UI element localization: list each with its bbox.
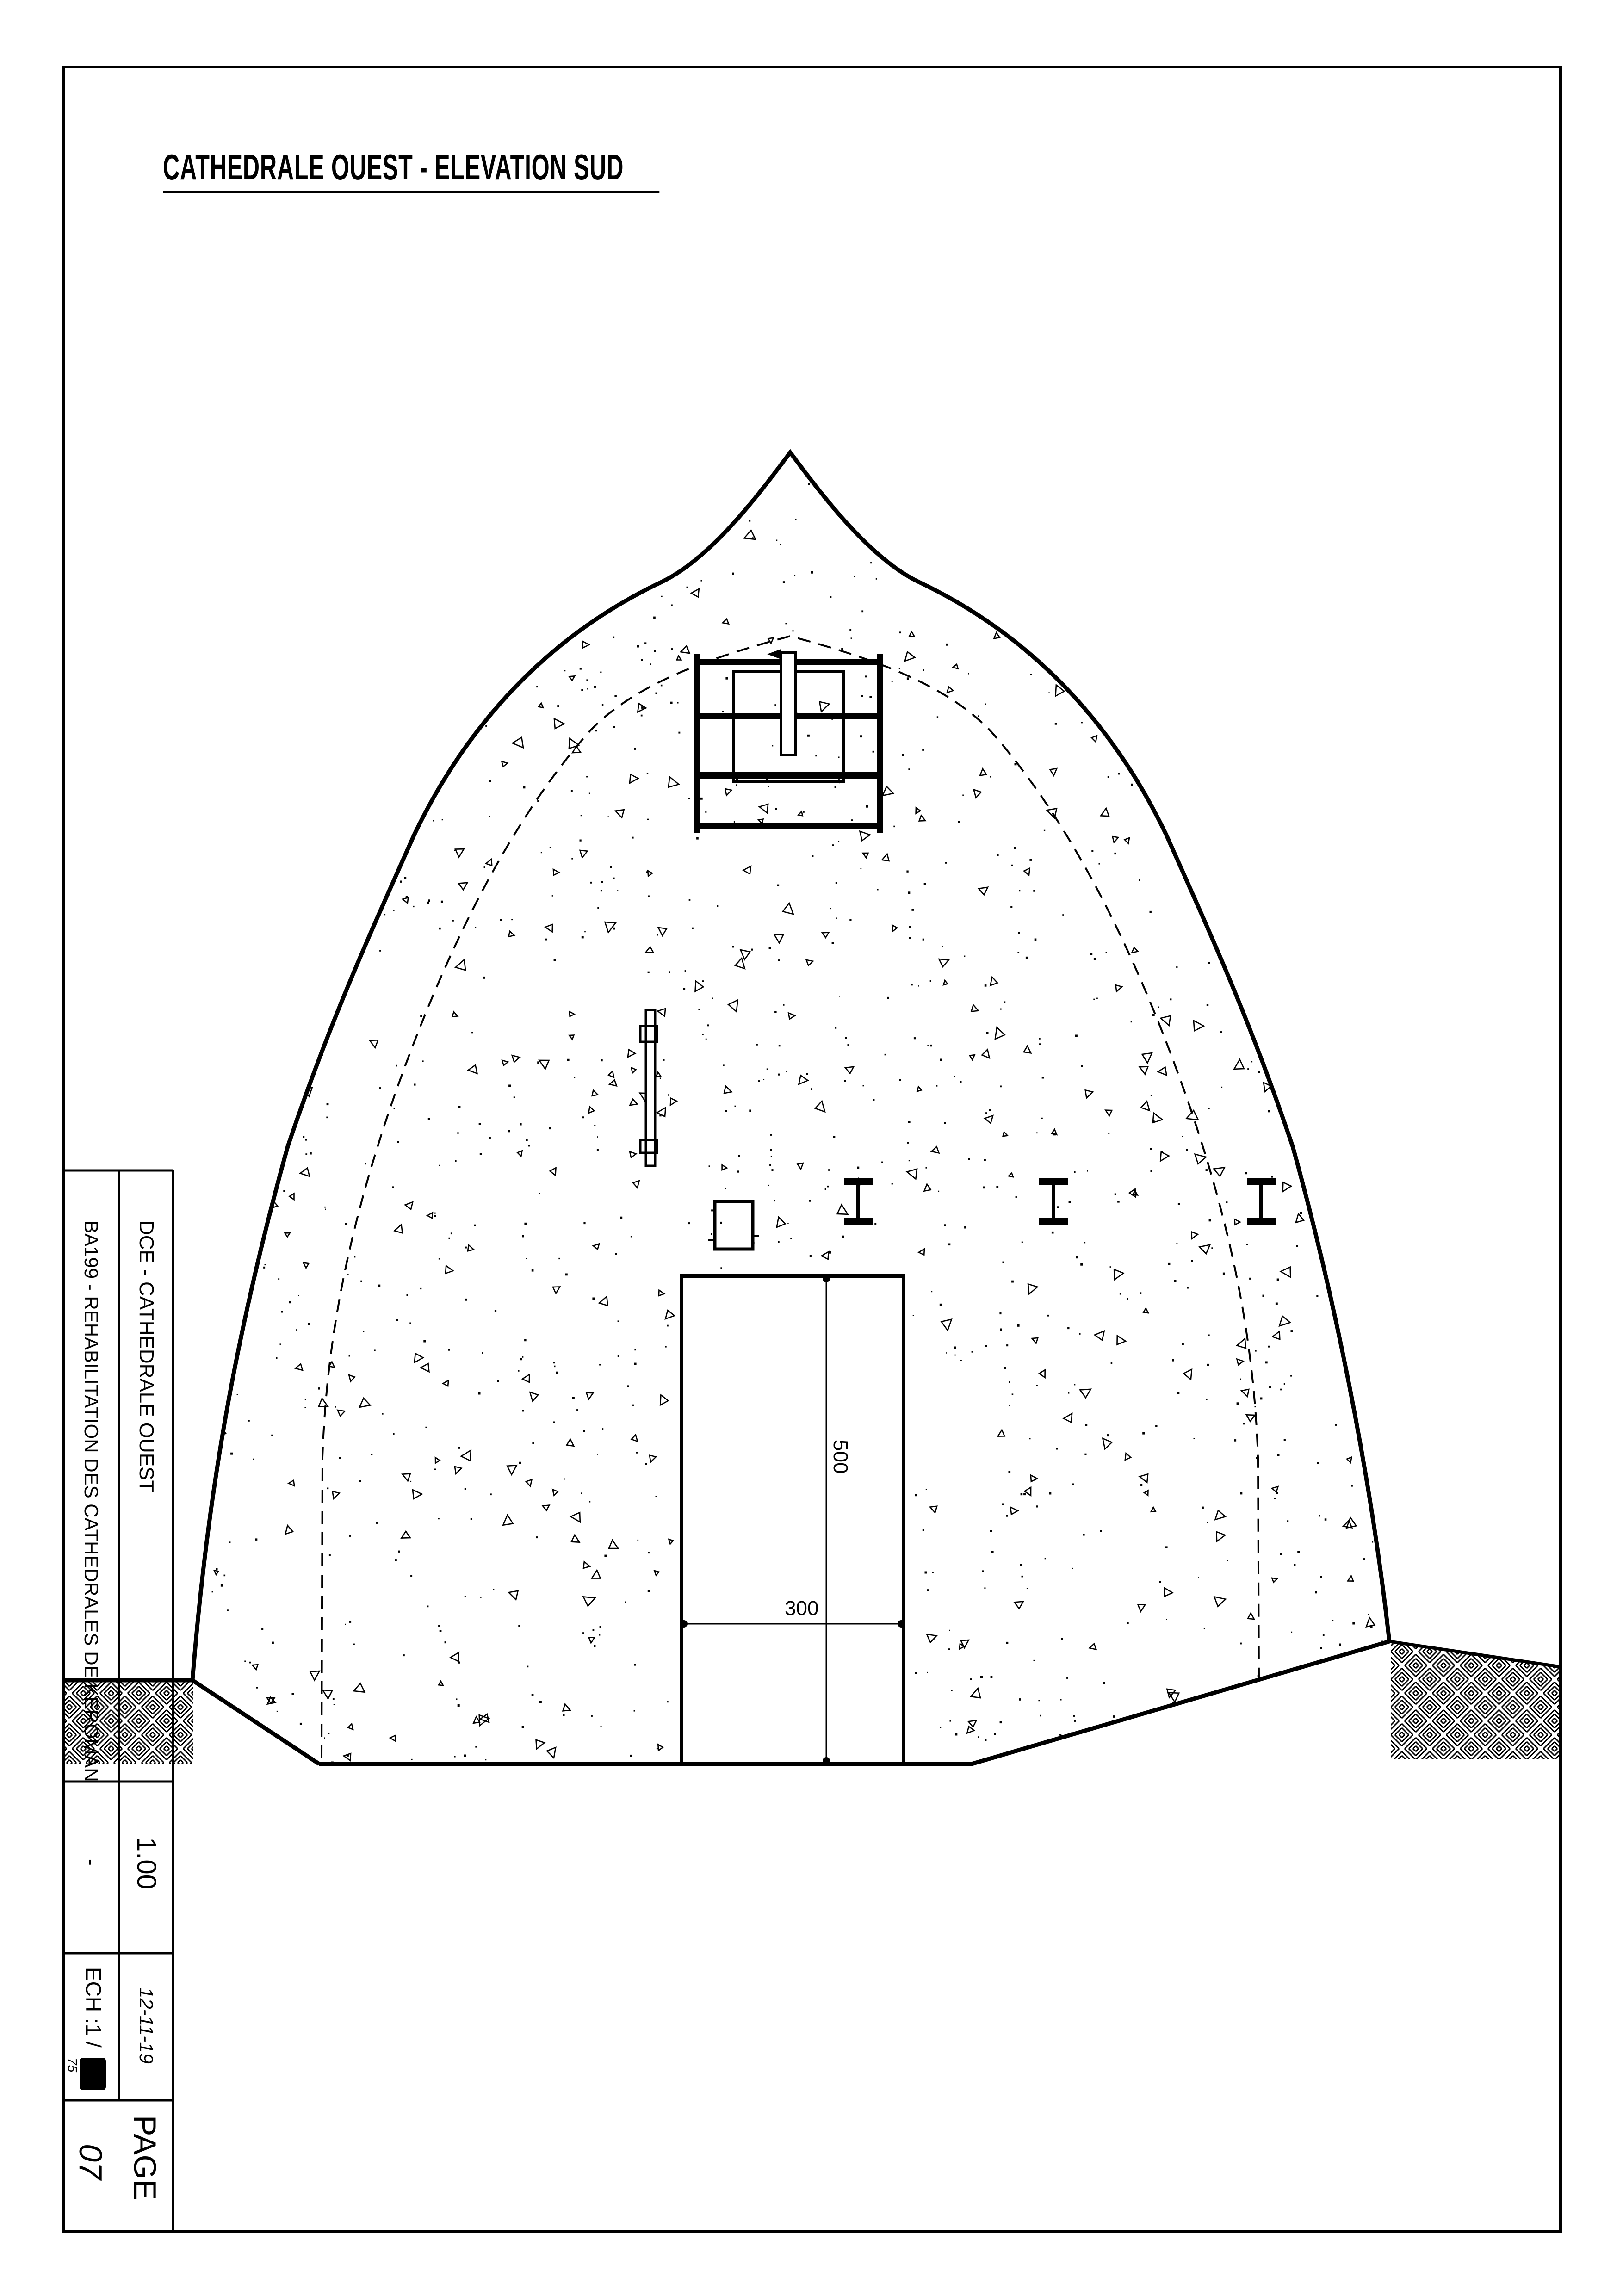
texture-dot — [1019, 890, 1020, 891]
texture-dot — [327, 1103, 329, 1105]
titleblock-page-number: 07 — [74, 2144, 107, 2180]
texture-triangle — [494, 499, 504, 510]
texture-dot — [225, 802, 226, 803]
texture-dot — [391, 505, 394, 507]
texture-dot — [495, 1310, 496, 1312]
texture-dot — [438, 1518, 440, 1519]
texture-dot — [328, 711, 330, 713]
texture-dot — [689, 899, 691, 901]
texture-dot — [857, 1167, 859, 1169]
texture-dot — [497, 1380, 499, 1382]
texture-dot — [832, 844, 834, 846]
texture-dot — [1227, 1560, 1228, 1561]
texture-dot — [937, 716, 938, 718]
texture-dot — [553, 1422, 555, 1423]
texture-dot — [280, 1343, 281, 1345]
texture-dot — [356, 501, 359, 503]
texture-dot — [766, 455, 768, 457]
texture-dot — [1258, 1071, 1260, 1073]
texture-dot — [253, 1174, 255, 1176]
texture-dot — [609, 539, 611, 541]
texture-dot — [845, 1037, 847, 1039]
texture-dot — [717, 905, 718, 907]
texture-dot — [296, 1329, 297, 1331]
texture-dot — [556, 1372, 558, 1374]
texture-dot — [1177, 1392, 1179, 1394]
texture-dot — [1057, 1206, 1059, 1208]
texture-dot — [1084, 1454, 1086, 1455]
texture-dot — [985, 1345, 987, 1347]
texture-dot — [936, 1085, 937, 1087]
texture-dot — [1081, 1065, 1083, 1067]
texture-triangle — [283, 657, 289, 662]
texture-dot — [1106, 952, 1107, 953]
texture-dot — [1166, 1619, 1167, 1620]
texture-dot — [597, 1454, 598, 1455]
texture-dot — [602, 704, 603, 706]
texture-dot — [785, 623, 787, 624]
texture-dot — [1060, 1699, 1061, 1700]
texture-dot — [427, 902, 429, 904]
texture-dot — [691, 472, 693, 473]
texture-dot — [519, 1462, 521, 1464]
texture-dot — [333, 1698, 335, 1700]
texture-dot — [657, 934, 658, 936]
texture-dot — [811, 1088, 812, 1090]
texture-dot — [685, 970, 686, 972]
texture-dot — [860, 735, 862, 737]
texture-dot — [541, 852, 542, 853]
texture-dot — [473, 497, 475, 499]
texture-triangle — [470, 615, 480, 625]
texture-dot — [188, 1537, 190, 1539]
texture-dot — [548, 455, 550, 457]
texture-dot — [197, 1591, 198, 1593]
texture-dot — [927, 1672, 928, 1673]
texture-dot — [768, 1185, 769, 1186]
texture-dot — [876, 578, 877, 580]
texture-dot — [1207, 1522, 1208, 1523]
texture-dot — [1114, 853, 1116, 854]
texture-dot — [1000, 1721, 1002, 1723]
texture-dot — [457, 573, 459, 575]
texture-dot — [1039, 1043, 1041, 1045]
texture-dot — [359, 907, 360, 908]
texture-dot — [1099, 863, 1100, 865]
texture-dot — [197, 1420, 199, 1422]
texture-dot — [911, 909, 914, 911]
texture-dot — [352, 498, 354, 500]
texture-dot — [396, 1319, 398, 1321]
texture-dot — [1080, 1263, 1083, 1266]
texture-dot — [264, 1084, 266, 1086]
texture-dot — [763, 1079, 765, 1080]
texture-dot — [270, 825, 271, 827]
texture-dot — [1090, 953, 1092, 955]
texture-dot — [479, 1123, 481, 1125]
texture-dot — [620, 1217, 623, 1219]
texture-dot — [630, 1755, 632, 1757]
texture-dot — [1168, 1263, 1171, 1265]
texture-dot — [707, 1024, 709, 1026]
texture-dot — [303, 1136, 304, 1138]
texture-dot — [1093, 999, 1095, 1000]
texture-dot — [523, 483, 524, 484]
texture-dot — [908, 1121, 911, 1123]
texture-dot — [1226, 1201, 1228, 1203]
texture-triangle — [455, 610, 469, 623]
texture-dot — [229, 461, 231, 463]
texture-dot — [1047, 1315, 1049, 1317]
texture-dot — [927, 1589, 929, 1591]
texture-dot — [289, 1301, 291, 1303]
texture-dot — [964, 1226, 966, 1229]
texture-dot — [637, 645, 639, 648]
texture-dot — [1176, 966, 1177, 968]
texture-dot — [489, 1137, 491, 1139]
texture-dot — [478, 1392, 481, 1395]
texture-dot — [194, 535, 196, 537]
texture-dot — [778, 1241, 780, 1243]
texture-dot — [1208, 1335, 1210, 1337]
texture-dot — [634, 1710, 635, 1712]
texture-dot — [212, 1348, 214, 1349]
texture-dot — [1161, 1151, 1163, 1152]
texture-dot — [861, 868, 862, 869]
texture-dot — [586, 679, 588, 681]
texture-dot — [1016, 1196, 1017, 1198]
texture-dot — [725, 1188, 726, 1189]
texture-dot — [511, 919, 513, 920]
scale-redaction-box — [80, 2058, 106, 2090]
texture-dot — [207, 603, 209, 604]
texture-dot — [978, 1736, 979, 1738]
texture-triangle — [241, 607, 247, 612]
texture-triangle — [308, 995, 316, 1003]
texture-triangle — [239, 1009, 244, 1015]
texture-dot — [1265, 1362, 1268, 1364]
texture-dot — [550, 847, 551, 848]
texture-dot — [915, 1672, 917, 1674]
texture-dot — [657, 547, 658, 549]
texture-dot — [1351, 1485, 1353, 1487]
texture-triangle — [508, 623, 516, 631]
texture-dot — [945, 862, 947, 863]
texture-dot — [254, 1166, 256, 1169]
texture-dot — [736, 784, 737, 786]
texture-dot — [915, 1494, 917, 1496]
texture-dot — [597, 907, 599, 909]
texture-dot — [615, 1253, 617, 1255]
texture-dot — [261, 996, 262, 997]
texture-dot — [484, 866, 485, 868]
texture-dot — [1247, 1068, 1249, 1070]
texture-dot — [452, 725, 454, 726]
texture-dot — [1208, 962, 1210, 964]
texture-dot — [1000, 1329, 1002, 1331]
texture-dot — [1268, 1110, 1270, 1112]
texture-dot — [397, 1141, 399, 1143]
texture-dot — [423, 1340, 426, 1343]
texture-dot — [1352, 1622, 1355, 1625]
texture-dot — [657, 1748, 658, 1749]
texture-dot — [836, 917, 837, 919]
texture-dot — [774, 704, 776, 706]
texture-dot — [493, 1589, 494, 1590]
texture-dot — [1276, 1492, 1278, 1494]
texture-dot — [778, 1074, 780, 1076]
texture-dot — [654, 650, 656, 652]
texture-dot — [668, 1094, 669, 1095]
titleblock-project: BA199 - REHABILITATION DES CATHEDRALES D… — [81, 1220, 101, 1782]
texture-dot — [1027, 1588, 1028, 1589]
texture-dot — [1174, 1280, 1177, 1282]
texture-triangle — [255, 497, 261, 503]
texture-dot — [881, 1162, 883, 1163]
texture-dot — [1280, 1389, 1282, 1391]
texture-dot — [836, 882, 837, 884]
texture-dot — [557, 705, 559, 707]
texture-triangle — [468, 681, 480, 693]
texture-dot — [751, 949, 753, 951]
texture-dot — [812, 855, 814, 857]
texture-dot — [207, 567, 209, 569]
texture-dot — [1120, 1293, 1121, 1294]
texture-dot — [1014, 847, 1016, 849]
texture-dot — [720, 1267, 722, 1269]
texture-dot — [349, 1535, 351, 1537]
texture-dot — [625, 1602, 626, 1603]
texture-dot — [907, 677, 909, 680]
texture-dot — [376, 652, 378, 654]
texture-dot — [211, 1306, 213, 1309]
texture-dot — [277, 1711, 278, 1712]
texture-dot — [923, 669, 924, 671]
texture-dot — [854, 576, 855, 577]
texture-dot — [842, 1236, 844, 1238]
texture-dot — [613, 637, 615, 638]
texture-dot — [1291, 1632, 1293, 1633]
texture-dot — [848, 1044, 849, 1046]
texture-dot — [909, 1160, 910, 1161]
texture-dot — [468, 644, 470, 646]
texture-dot — [1207, 1364, 1209, 1366]
texture-dot — [539, 1701, 542, 1703]
texture-dot — [1150, 1148, 1152, 1150]
texture-dot — [999, 1312, 1001, 1314]
texture-triangle — [255, 670, 263, 678]
texture-dot — [922, 749, 924, 751]
texture-dot — [345, 1223, 347, 1225]
texture-dot — [1142, 1432, 1145, 1435]
texture-dot — [255, 929, 258, 931]
texture-dot — [650, 663, 651, 665]
texture-dot — [927, 1045, 929, 1046]
texture-dot — [213, 1108, 214, 1109]
texture-dot — [300, 1058, 302, 1060]
texture-dot — [955, 1733, 958, 1736]
texture-dot — [1041, 1118, 1043, 1119]
texture-dot — [948, 1244, 951, 1246]
texture-dot — [632, 837, 634, 839]
texture-dot — [752, 537, 754, 539]
texture-triangle — [440, 478, 452, 491]
texture-dot — [217, 817, 218, 818]
texture-dot — [1280, 1553, 1282, 1555]
texture-dot — [453, 668, 454, 669]
texture-dot — [810, 1255, 811, 1257]
texture-dot — [230, 972, 232, 974]
texture-dot — [870, 562, 872, 563]
texture-dot — [702, 1034, 704, 1035]
texture-dot — [311, 859, 313, 861]
texture-dot — [305, 1139, 307, 1141]
texture-dot — [1066, 1677, 1068, 1679]
texture-dot — [1075, 1035, 1078, 1037]
texture-dot — [608, 816, 609, 817]
texture-dot — [687, 587, 688, 588]
texture-dot — [324, 1207, 326, 1208]
texture-dot — [439, 928, 440, 929]
texture-dot — [641, 715, 643, 717]
texture-dot — [776, 540, 777, 541]
texture-dot — [527, 1666, 529, 1668]
texture-dot — [518, 1370, 520, 1372]
texture-dot — [565, 1274, 568, 1276]
texture-dot — [602, 1428, 603, 1430]
texture-dot — [272, 600, 274, 602]
texture-dot — [769, 1164, 771, 1166]
texture-triangle — [409, 676, 421, 688]
texture-dot — [1127, 1298, 1128, 1300]
texture-dot — [644, 642, 646, 644]
texture-dot — [948, 1648, 950, 1650]
texture-dot — [1323, 1634, 1325, 1636]
texture-dot — [327, 1488, 329, 1490]
texture-triangle — [345, 584, 352, 592]
texture-dot — [1297, 1551, 1300, 1553]
texture-dot — [565, 556, 568, 558]
texture-dot — [451, 1232, 452, 1234]
texture-dot — [365, 1163, 366, 1164]
texture-dot — [571, 858, 573, 859]
texture-dot — [308, 1323, 310, 1325]
texture-dot — [913, 1315, 914, 1316]
texture-dot — [604, 1555, 607, 1557]
texture-dot — [248, 1420, 250, 1422]
texture-dot — [199, 1083, 200, 1084]
texture-dot — [1011, 865, 1013, 866]
texture-triangle — [433, 690, 442, 699]
texture-dot — [256, 644, 257, 645]
texture-dot — [1008, 629, 1009, 630]
texture-dot — [1010, 906, 1012, 908]
texture-dot — [749, 520, 750, 521]
texture-dot — [892, 681, 893, 682]
texture-dot — [227, 1609, 229, 1611]
dim-dot — [823, 1757, 830, 1764]
texture-dot — [849, 629, 851, 631]
texture-dot — [601, 881, 603, 883]
texture-dot — [302, 939, 304, 941]
texture-dot — [221, 1584, 223, 1587]
texture-dot — [248, 600, 250, 602]
window-bar — [694, 772, 883, 779]
texture-dot — [1177, 1243, 1178, 1244]
texture-dot — [1035, 939, 1037, 941]
texture-dot — [439, 1165, 440, 1166]
texture-dot — [255, 612, 257, 613]
texture-triangle — [329, 718, 341, 730]
texture-dot — [1320, 1576, 1322, 1578]
texture-dot — [1255, 1406, 1256, 1407]
texture-dot — [269, 668, 271, 670]
texture-dot — [522, 570, 524, 573]
texture-dot — [249, 1662, 251, 1664]
texture-dot — [520, 1358, 522, 1361]
texture-dot — [363, 1331, 364, 1332]
titleblock-page-label: PAGE — [129, 2115, 161, 2200]
texture-dot — [186, 1433, 188, 1434]
texture-triangle — [533, 650, 537, 655]
texture-dot — [980, 1676, 983, 1678]
texture-dot — [347, 1274, 349, 1275]
texture-dot — [261, 589, 262, 590]
texture-dot — [480, 1597, 482, 1598]
texture-triangle — [287, 468, 298, 479]
texture-dot — [942, 946, 943, 947]
texture-dot — [617, 890, 619, 891]
texture-dot — [518, 1625, 520, 1627]
texture-dot — [865, 675, 867, 677]
texture-dot — [899, 668, 900, 669]
texture-dot — [495, 522, 497, 524]
texture-dot — [696, 837, 699, 840]
texture-dot — [190, 597, 192, 599]
texture-dot — [645, 1463, 647, 1465]
texture-dot — [1155, 1425, 1157, 1427]
texture-dot — [958, 821, 960, 823]
texture-dot — [526, 1258, 527, 1259]
texture-dot — [1006, 1642, 1008, 1644]
texture-dot — [347, 476, 348, 477]
texture-dot — [983, 1187, 985, 1189]
texture-dot — [589, 1501, 590, 1503]
texture-dot — [610, 866, 612, 868]
texture-dot — [1000, 1086, 1002, 1088]
texture-dot — [1315, 1591, 1317, 1594]
texture-dot — [524, 1339, 527, 1342]
texture-dot — [583, 1430, 585, 1432]
texture-dot — [1140, 1292, 1141, 1294]
titleblock-date: 12-11-19 — [136, 1987, 156, 2064]
texture-dot — [333, 559, 335, 561]
texture-dot — [448, 1349, 450, 1351]
texture-triangle — [343, 735, 350, 742]
texture-dot — [1107, 1434, 1109, 1436]
texture-dot — [327, 662, 329, 664]
texture-dot — [420, 1288, 421, 1289]
texture-dot — [229, 1541, 230, 1543]
texture-triangle — [197, 1381, 208, 1392]
door-opening — [681, 1276, 904, 1764]
texture-dot — [1062, 914, 1064, 916]
texture-dot — [529, 636, 531, 637]
texture-dot — [382, 1413, 384, 1415]
texture-dot — [923, 1529, 924, 1531]
texture-dot — [978, 715, 979, 717]
texture-dot — [1291, 1330, 1293, 1332]
